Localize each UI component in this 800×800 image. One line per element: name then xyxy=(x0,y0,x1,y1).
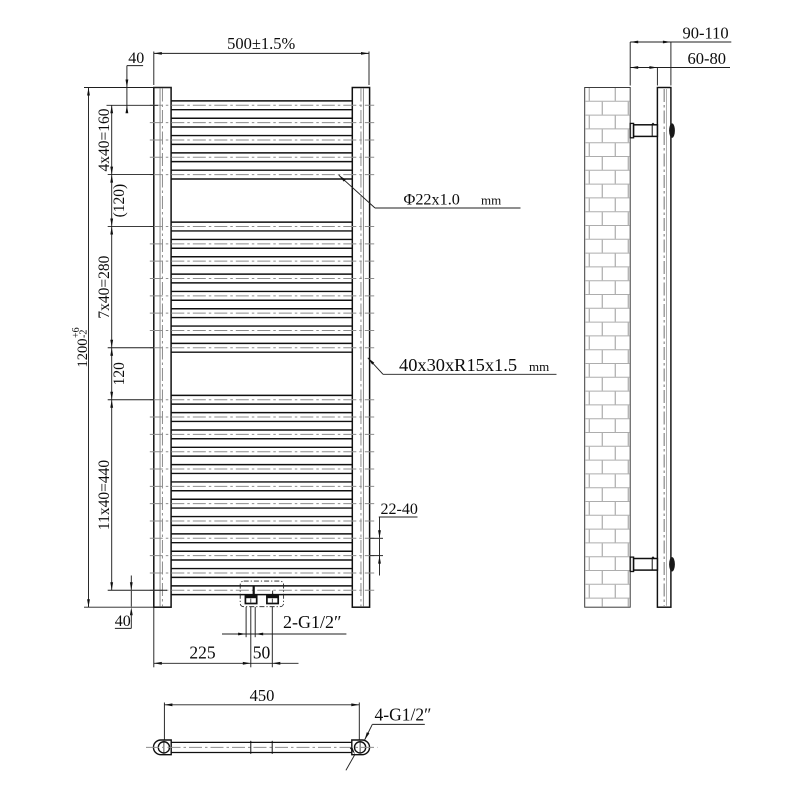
svg-text:2-G1/2″: 2-G1/2″ xyxy=(283,612,342,632)
svg-text:500±1.5%: 500±1.5% xyxy=(227,34,295,53)
svg-text:11x40=440: 11x40=440 xyxy=(96,460,113,530)
svg-text:22-40: 22-40 xyxy=(381,501,418,518)
svg-text:(120): (120) xyxy=(111,184,128,218)
svg-text:1200: 1200 xyxy=(75,339,91,368)
svg-text:7x40=280: 7x40=280 xyxy=(96,255,113,318)
svg-text:4-G1/2″: 4-G1/2″ xyxy=(375,705,432,725)
svg-text:mm: mm xyxy=(529,359,549,374)
svg-text:4x40=160: 4x40=160 xyxy=(96,108,113,171)
svg-text:Φ22x1.0: Φ22x1.0 xyxy=(404,191,460,209)
svg-text:90-110: 90-110 xyxy=(683,24,729,43)
svg-text:40: 40 xyxy=(115,613,131,630)
svg-text:450: 450 xyxy=(250,686,275,705)
svg-text:-2: -2 xyxy=(78,330,89,338)
svg-text:225: 225 xyxy=(189,642,216,662)
svg-text:40: 40 xyxy=(128,50,144,67)
svg-text:50: 50 xyxy=(253,642,271,662)
svg-text:60-80: 60-80 xyxy=(688,49,727,68)
svg-text:mm: mm xyxy=(481,193,501,208)
svg-text:40x30xR15x1.5: 40x30xR15x1.5 xyxy=(399,355,517,375)
svg-text:120: 120 xyxy=(111,362,128,386)
